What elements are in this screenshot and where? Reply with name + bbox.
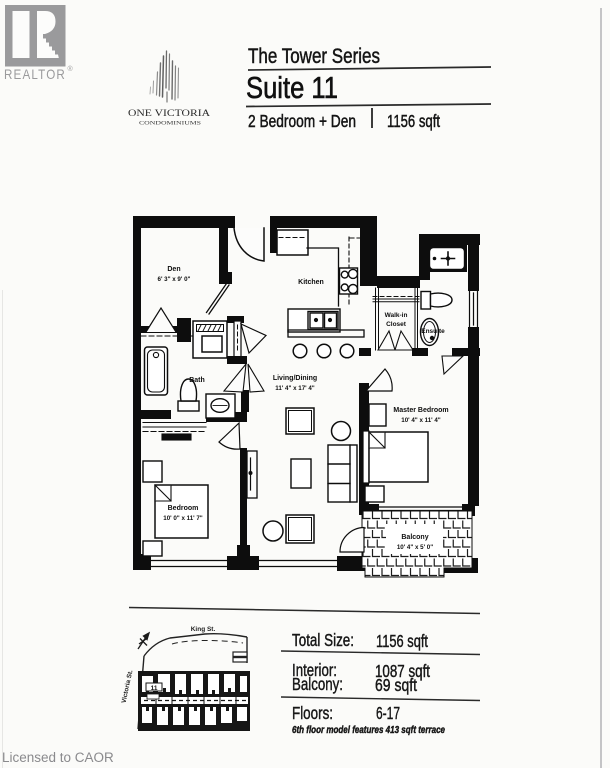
svg-text:Living/Dining: Living/Dining bbox=[273, 375, 317, 382]
svg-text:10' 4" x 11' 4": 10' 4" x 11' 4" bbox=[401, 417, 440, 424]
svg-text:Bedroom: Bedroom bbox=[168, 505, 199, 512]
svg-text:The Tower Series: The Tower Series bbox=[248, 44, 380, 68]
svg-text:6-17: 6-17 bbox=[376, 703, 400, 723]
svg-text:King St.: King St. bbox=[191, 626, 216, 633]
svg-text:®: ® bbox=[68, 65, 74, 73]
svg-text:Walk-in: Walk-in bbox=[385, 312, 408, 319]
svg-text:Balcony: Balcony bbox=[401, 534, 428, 541]
svg-text:Kitchen: Kitchen bbox=[298, 279, 324, 286]
svg-text:Bath: Bath bbox=[189, 377, 205, 384]
svg-text:6' 3" x 9' 0": 6' 3" x 9' 0" bbox=[158, 276, 191, 283]
svg-text:10' 4" x 5' 0": 10' 4" x 5' 0" bbox=[397, 544, 433, 551]
svg-text:11' 4" x 17' 4": 11' 4" x 17' 4" bbox=[275, 385, 314, 392]
svg-text:Total Size:: Total Size: bbox=[292, 630, 354, 650]
svg-text:Suite 11: Suite 11 bbox=[246, 71, 338, 105]
svg-text:CONDOMINIUMS: CONDOMINIUMS bbox=[139, 121, 201, 127]
svg-text:Ensuite: Ensuite bbox=[421, 328, 445, 335]
svg-text:1156 sqft: 1156 sqft bbox=[387, 111, 440, 131]
svg-text:2 Bedroom + Den: 2 Bedroom + Den bbox=[248, 111, 356, 131]
svg-text:Master Bedroom: Master Bedroom bbox=[393, 407, 448, 414]
svg-text:REALTOR: REALTOR bbox=[4, 66, 66, 82]
svg-text:Balcony:: Balcony: bbox=[292, 674, 343, 694]
svg-text:Floors:: Floors: bbox=[292, 703, 333, 723]
svg-text:Closet: Closet bbox=[386, 321, 407, 328]
svg-text:10' 0" x 11' 7": 10' 0" x 11' 7" bbox=[163, 515, 202, 522]
svg-text:Den: Den bbox=[167, 266, 180, 273]
svg-text:ONE VICTORIA: ONE VICTORIA bbox=[128, 108, 211, 118]
svg-text:6th floor model features 413 s: 6th floor model features 413 sqft terrac… bbox=[292, 724, 445, 736]
svg-text:11: 11 bbox=[151, 685, 158, 692]
svg-text:69 sqft: 69 sqft bbox=[375, 675, 417, 695]
svg-text:Licensed to CAOR: Licensed to CAOR bbox=[2, 750, 114, 765]
svg-text:1156 sqft: 1156 sqft bbox=[376, 631, 428, 651]
